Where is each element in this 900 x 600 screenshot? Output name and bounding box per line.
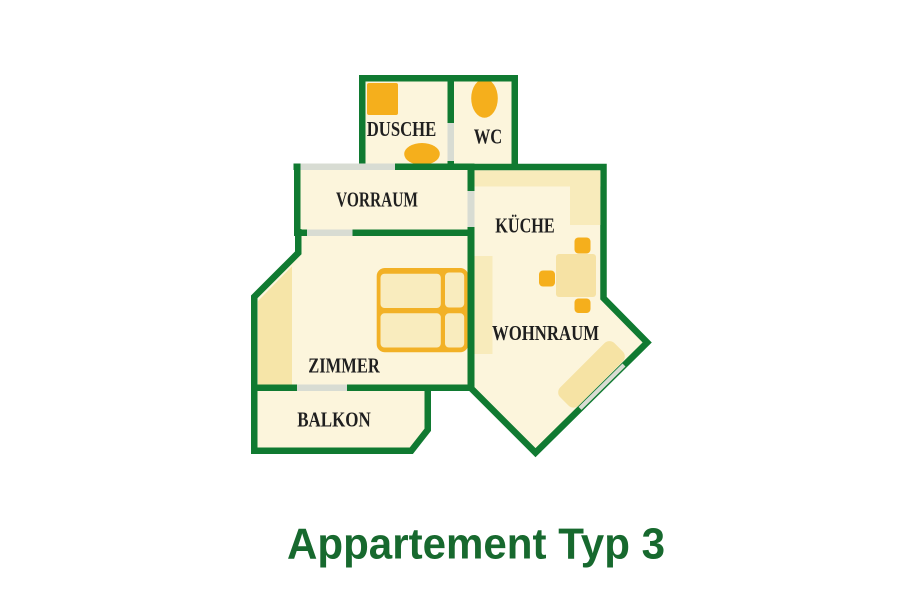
svg-text:Appartement Typ 3: Appartement Typ 3 bbox=[287, 520, 665, 569]
svg-text:ZIMMER: ZIMMER bbox=[308, 354, 380, 378]
svg-text:WOHNRAUM: WOHNRAUM bbox=[492, 321, 599, 345]
svg-text:KÜCHE: KÜCHE bbox=[495, 214, 555, 238]
svg-text:BALKON: BALKON bbox=[297, 408, 371, 432]
svg-text:VORRAUM: VORRAUM bbox=[336, 188, 418, 212]
svg-text:DUSCHE: DUSCHE bbox=[367, 117, 437, 141]
svg-text:WC: WC bbox=[474, 125, 503, 149]
